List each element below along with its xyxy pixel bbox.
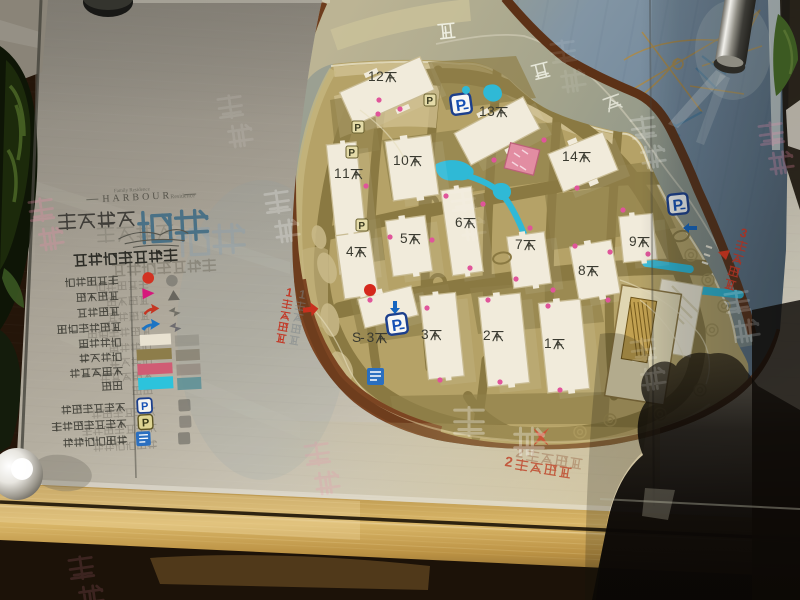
svg-text:P: P — [142, 417, 150, 429]
svg-text:P: P — [141, 401, 149, 413]
